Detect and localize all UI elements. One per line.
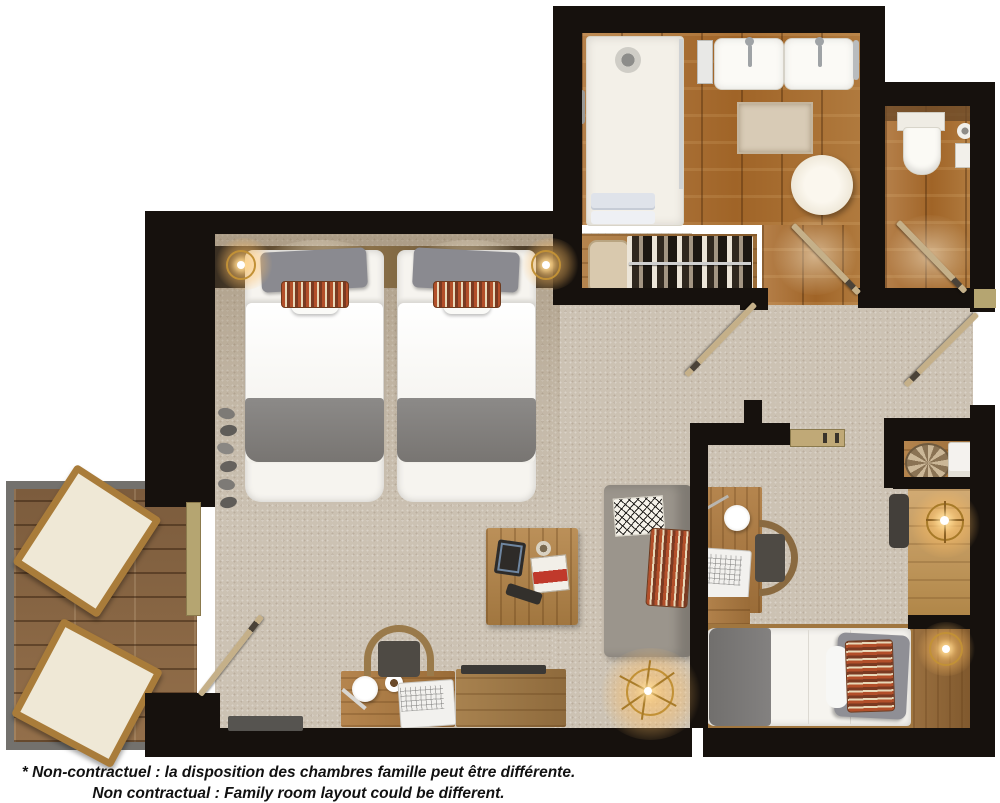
shower-tray	[586, 36, 684, 226]
side-stool	[889, 494, 909, 548]
balcony-door-frame	[186, 502, 201, 616]
disclaimer-line-fr: * Non-contractuel : la disposition des c…	[6, 762, 591, 783]
headboard-lamp	[929, 632, 963, 666]
sink-basin	[714, 38, 784, 90]
hanging-clothes	[627, 236, 753, 292]
dresser-lamp	[926, 503, 964, 541]
wall-bathroom-right	[860, 6, 885, 305]
wall-tv	[228, 716, 303, 731]
wall-family-top	[690, 423, 790, 445]
tablet	[494, 539, 526, 577]
wall-lamp	[531, 250, 561, 280]
disclaimer-caption: * Non-contractuel : la disposition des c…	[6, 762, 591, 803]
sofa-cushion-orange	[645, 528, 692, 609]
wall-family-separator	[690, 423, 708, 757]
hallway-wood-floor	[762, 225, 860, 305]
single-bed	[700, 624, 916, 730]
desk-lamp	[724, 505, 750, 531]
coffee-table	[486, 528, 578, 625]
wall-bottom	[215, 728, 995, 757]
faucet-stem	[748, 45, 752, 67]
entry-door-jamb	[974, 289, 996, 308]
twin-bed	[243, 248, 386, 504]
shower-towels	[591, 193, 655, 208]
towel-rail	[853, 40, 859, 80]
writing-desk	[341, 671, 455, 727]
shower-towels	[591, 211, 655, 224]
desk-chair	[364, 625, 434, 679]
closet-rail	[629, 262, 751, 265]
console-cabinet	[456, 669, 566, 727]
laptop	[397, 679, 456, 729]
toilet-bowl	[903, 127, 941, 175]
slippers-row	[216, 408, 240, 518]
disclaimer-line-en: Non contractual : Family room layout cou…	[6, 783, 591, 803]
sink-basin	[784, 38, 854, 90]
wall-niche-bottom	[893, 477, 995, 489]
wall-lamp	[226, 250, 256, 280]
wall-headboard-band	[908, 615, 978, 629]
bed-throw-gray	[397, 398, 536, 462]
window-gap-bottom	[692, 728, 703, 757]
fluffy-pouf	[791, 155, 853, 215]
bed-throw-gray	[245, 398, 384, 462]
tripod-floor-lamp	[614, 658, 682, 726]
book	[530, 554, 570, 594]
bed-cushion-orange	[433, 281, 501, 308]
bath-rug	[737, 102, 813, 154]
shower-glass	[679, 39, 683, 189]
niche-shelf	[902, 441, 972, 479]
console-top-tray	[461, 665, 546, 674]
floor-plan-image: * Non-contractuel : la disposition des c…	[0, 0, 1000, 803]
wall-family-stub	[744, 400, 762, 430]
coat-rack-rail	[790, 429, 845, 447]
bed-cushion-orange	[281, 281, 349, 308]
family-desk-chair	[753, 520, 799, 596]
bed-throw-gray	[709, 628, 771, 726]
closet-mat	[588, 240, 630, 294]
wall-right-upper	[970, 82, 995, 312]
faucet-stem	[818, 45, 822, 67]
twin-bed	[395, 248, 538, 504]
wall-bedroom-left	[145, 211, 215, 507]
bed-cushion-orange	[845, 639, 895, 713]
small-dish	[536, 541, 551, 556]
wall-bathroom-top	[553, 6, 882, 33]
sofa-daybed	[604, 485, 692, 657]
desk-lamp-arm	[705, 495, 729, 511]
wall-right-lower	[970, 405, 995, 757]
bathroom-shelf	[697, 40, 713, 84]
shower-drain	[615, 47, 641, 73]
wall-closet-bottom	[553, 288, 762, 305]
wall-bottom-left-block	[145, 693, 220, 757]
